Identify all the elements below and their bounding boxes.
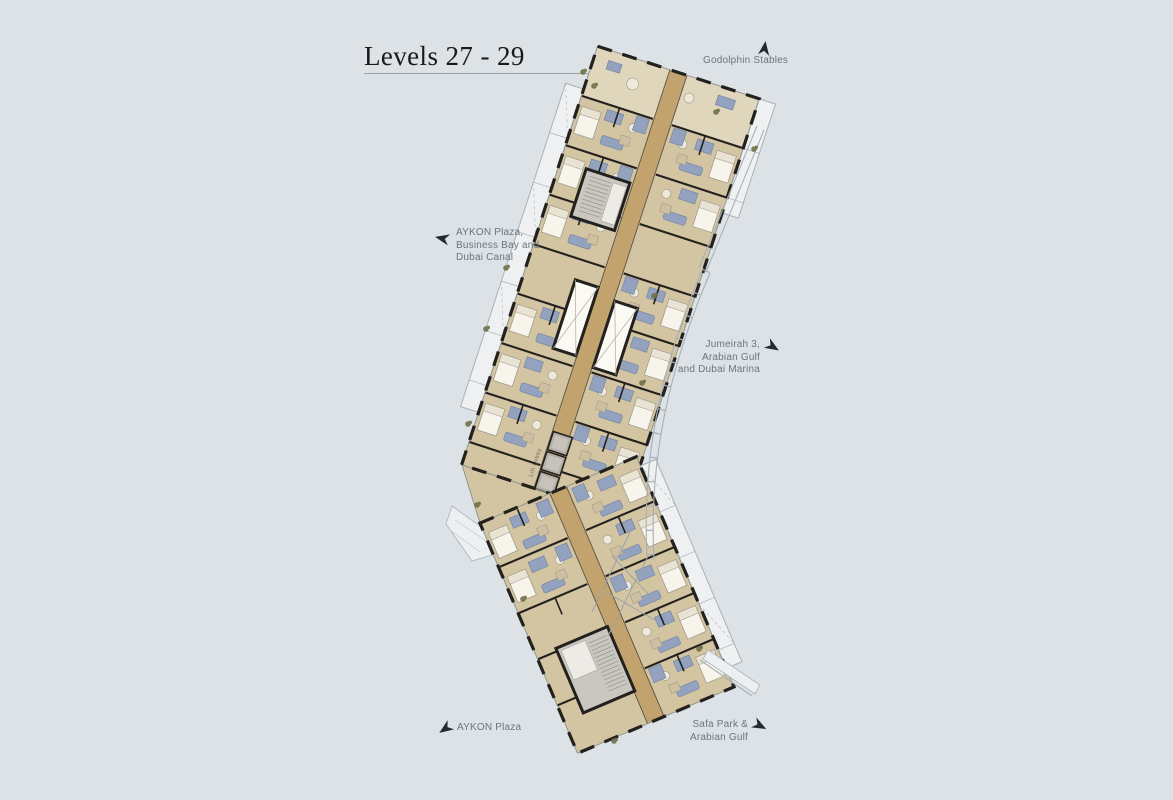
building-upper-segment: Lift Lobby [444, 40, 776, 522]
floorplan-svg: Lift Lobby [0, 0, 1173, 800]
label-jumeirah: Jumeirah 3, Arabian Gulf and Dubai Marin… [640, 339, 760, 377]
label-godolphin-stables: Godolphin Stables [703, 55, 788, 68]
label-aykon-plaza: AYKON Plaza [457, 722, 521, 735]
direction-arrow-icon [432, 228, 452, 248]
label-safa-park: Safa Park & Arabian Gulf [640, 719, 748, 744]
label-aykon-plaza-business-bay: AYKON Plaza, Business Bay and Dubai Cana… [456, 227, 539, 265]
floorplan-page: Levels 27 - 29 [0, 0, 1173, 800]
